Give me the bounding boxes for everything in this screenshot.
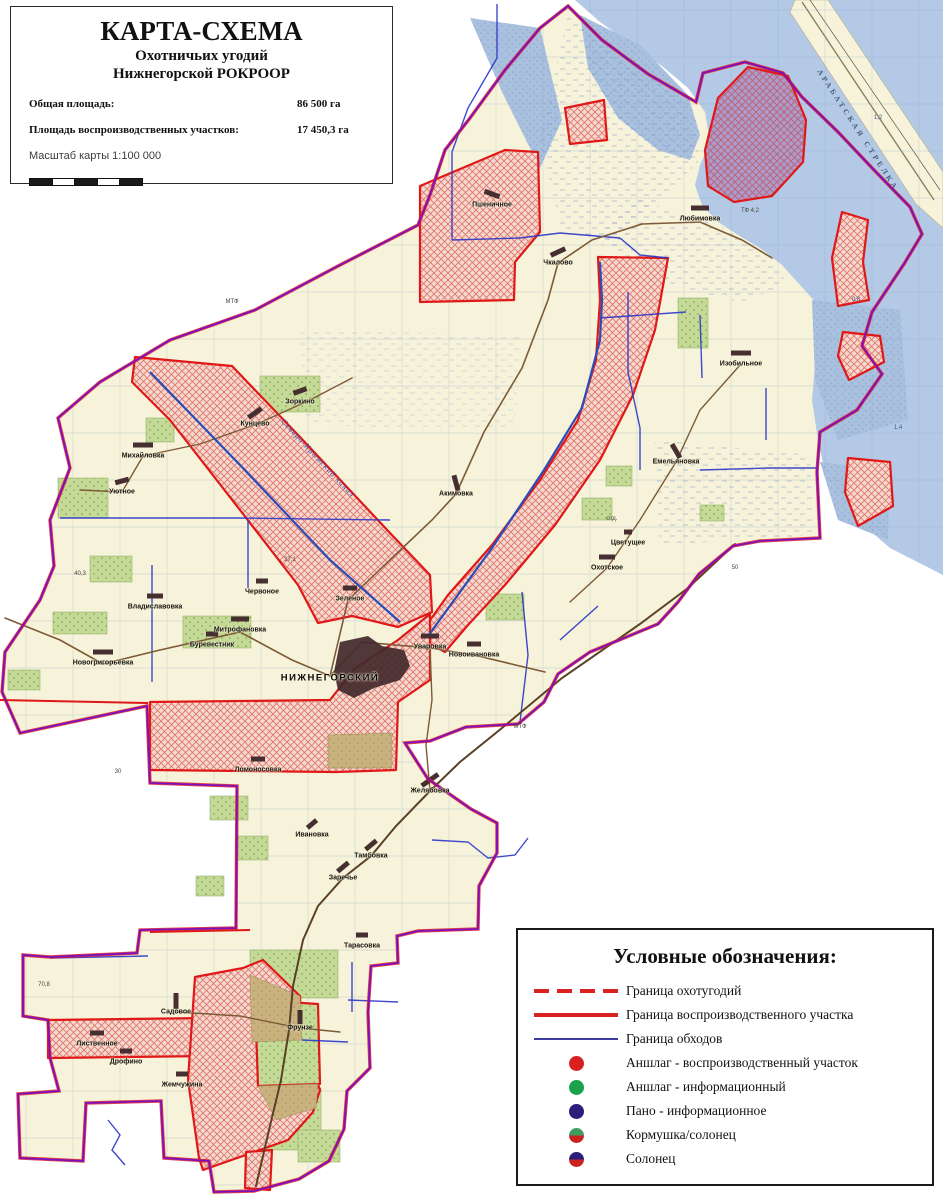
legend-item-label: Граница охотугодий xyxy=(620,983,741,999)
scale-bar-segment xyxy=(97,179,121,185)
stat-reproduction-area: Площадь воспроизводственных участков: 17… xyxy=(29,124,374,136)
map-scale-text: Масштаб карты 1:100 000 xyxy=(29,150,374,162)
legend-item: Пано - информационное xyxy=(532,1099,918,1123)
legend-item: Граница охотугодий xyxy=(532,979,918,1003)
scale-bar xyxy=(29,178,143,186)
village-strip xyxy=(90,1031,104,1036)
legend-item: Граница обходов xyxy=(532,1027,918,1051)
stat-reproduction-area-label: Площадь воспроизводственных участков: xyxy=(29,124,239,136)
village-strip xyxy=(343,586,357,591)
legend-item: Граница воспроизводственного участка xyxy=(532,1003,918,1027)
village-strip xyxy=(691,206,709,211)
legend-symbol-circle-split xyxy=(532,1128,620,1143)
legend-item: Аншлаг - информационный xyxy=(532,1075,918,1099)
village-strip xyxy=(231,617,249,622)
legend-symbol-line-solid xyxy=(532,1013,620,1017)
legend-item-label: Пано - информационное xyxy=(620,1103,766,1119)
village-strip xyxy=(147,594,163,599)
village-strip xyxy=(356,933,368,938)
legend-item-label: Аншлаг - информационный xyxy=(620,1079,786,1095)
legend-item-label: Граница воспроизводственного участка xyxy=(620,1007,853,1023)
map-subtitle-line1: Охотничьих угодий xyxy=(29,47,374,66)
stat-total-area: Общая площадь: 86 500 га xyxy=(29,98,374,110)
village-strip xyxy=(251,757,265,762)
village-strip xyxy=(120,1049,132,1054)
legend-item: Аншлаг - воспроизводственный участок xyxy=(532,1051,918,1075)
village-strip xyxy=(256,579,268,584)
legend-title: Условные обозначения: xyxy=(532,944,918,969)
village-strip xyxy=(467,642,481,647)
village-strip xyxy=(174,993,179,1009)
map-sheet: ПшеничноеЧкаловоЛюбимовкаИзобильноеЕмель… xyxy=(0,0,943,1200)
legend-symbol-line-thin xyxy=(532,1038,620,1041)
village-strip xyxy=(206,632,218,637)
village-strip xyxy=(133,443,153,448)
village-strip xyxy=(599,555,615,560)
legend-symbol-circle xyxy=(532,1080,620,1095)
legend-symbol-line-dashed xyxy=(532,989,620,993)
scale-bar-segment xyxy=(30,179,52,185)
scale-bar-segment xyxy=(120,179,142,185)
legend-item-label: Аншлаг - воспроизводственный участок xyxy=(620,1055,858,1071)
village-strip xyxy=(624,530,632,535)
legend-symbol-circle-split xyxy=(532,1152,620,1167)
village-strip xyxy=(176,1072,188,1077)
legend-symbol-circle xyxy=(532,1104,620,1119)
title-box: КАРТА-СХЕМА Охотничьих угодий Нижнегорск… xyxy=(10,6,393,184)
stat-reproduction-area-value: 17 450,3 га xyxy=(297,124,349,136)
map-subtitle-line2: Нижнегорской РОКРООР xyxy=(29,65,374,84)
legend-items: Граница охотугодийГраница воспроизводств… xyxy=(532,979,918,1171)
legend-item-label: Граница обходов xyxy=(620,1031,722,1047)
legend-box: Условные обозначения: Граница охотугодий… xyxy=(516,928,934,1186)
stat-total-area-value: 86 500 га xyxy=(297,98,341,110)
legend-item-label: Солонец xyxy=(620,1151,676,1167)
scale-bar-segment xyxy=(75,179,97,185)
village-strip xyxy=(421,634,439,639)
map-title: КАРТА-СХЕМА xyxy=(29,17,374,47)
legend-item: Кормушка/солонец xyxy=(532,1123,918,1147)
village-strip xyxy=(731,351,751,356)
legend-symbol-circle xyxy=(532,1056,620,1071)
scale-bar-segment xyxy=(52,179,76,185)
village-strip xyxy=(298,1010,303,1024)
village-strip xyxy=(93,650,113,655)
legend-item-label: Кормушка/солонец xyxy=(620,1127,736,1143)
legend-item: Солонец xyxy=(532,1147,918,1171)
stat-total-area-label: Общая площадь: xyxy=(29,98,114,110)
